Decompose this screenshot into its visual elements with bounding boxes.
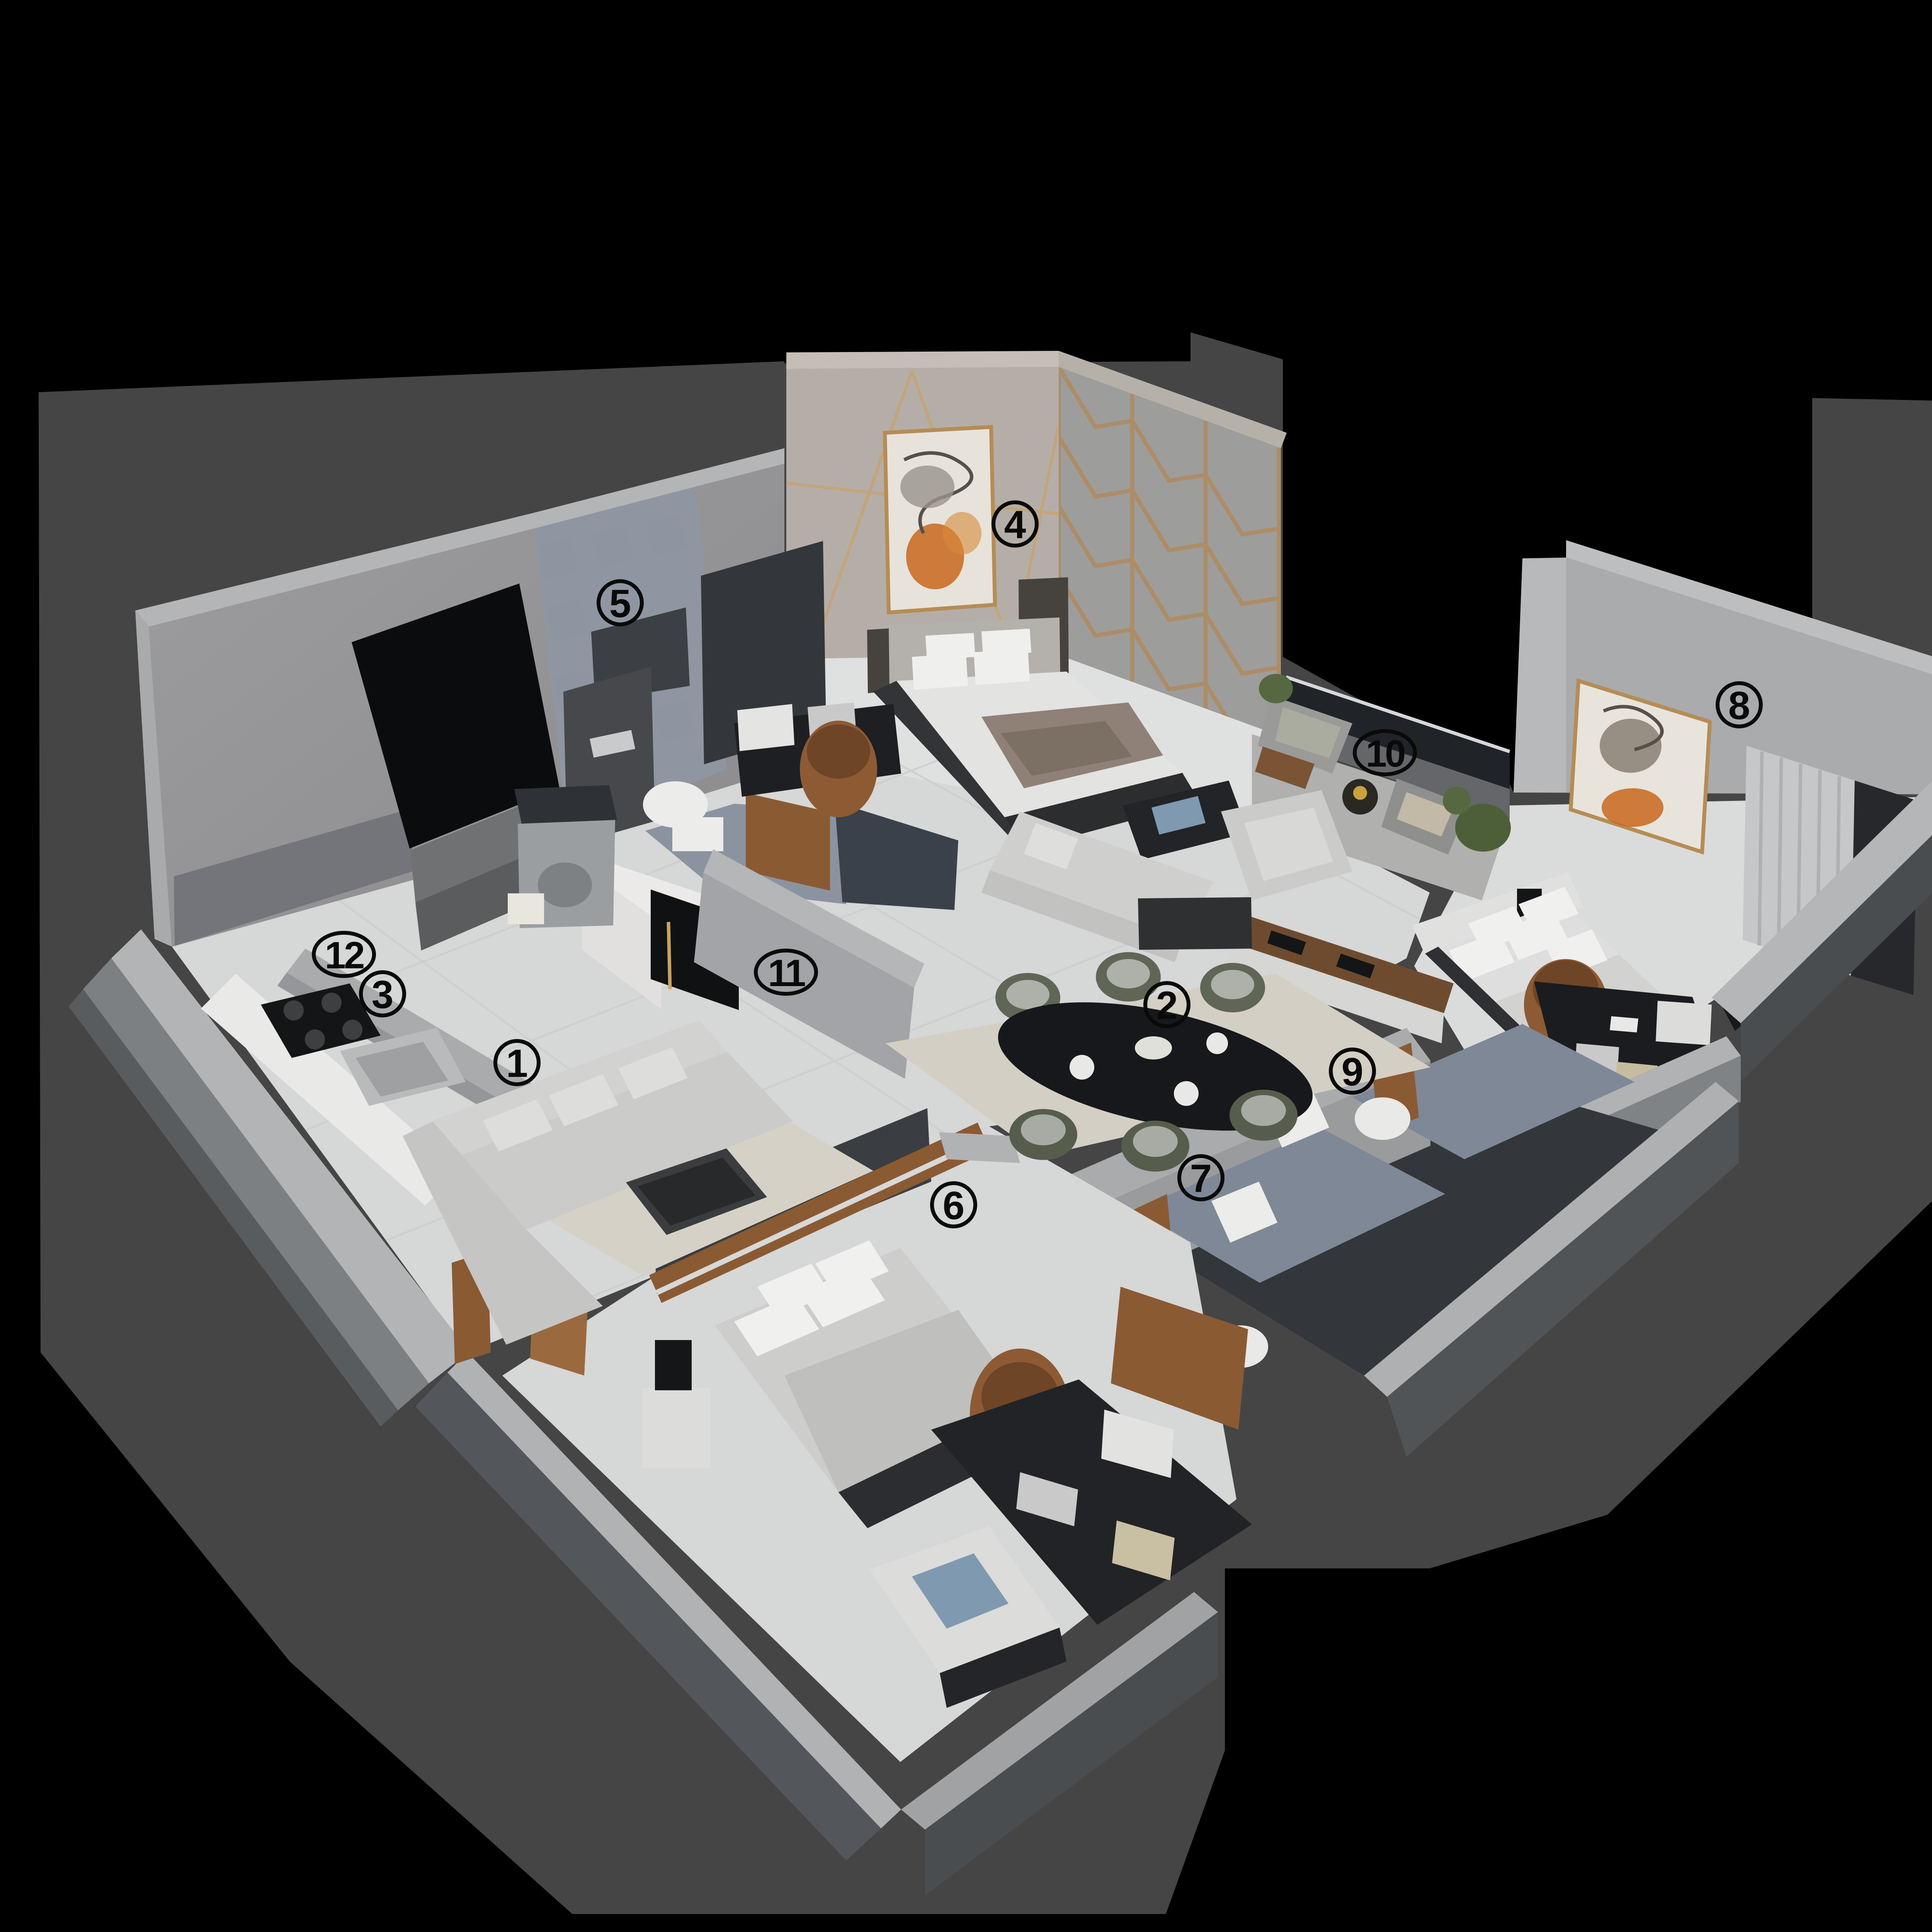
svg-text:8: 8 bbox=[1728, 684, 1750, 728]
svg-text:4: 4 bbox=[1004, 503, 1026, 547]
svg-text:5: 5 bbox=[609, 582, 631, 626]
svg-text:6: 6 bbox=[943, 1184, 965, 1228]
svg-text:3: 3 bbox=[372, 973, 394, 1017]
svg-text:11: 11 bbox=[768, 952, 805, 994]
svg-text:10: 10 bbox=[1366, 732, 1405, 775]
svg-text:2: 2 bbox=[1156, 983, 1178, 1027]
svg-text:7: 7 bbox=[1190, 1156, 1212, 1201]
svg-text:12: 12 bbox=[325, 934, 364, 976]
svg-text:1: 1 bbox=[506, 1041, 528, 1085]
svg-text:9: 9 bbox=[1342, 1050, 1364, 1094]
